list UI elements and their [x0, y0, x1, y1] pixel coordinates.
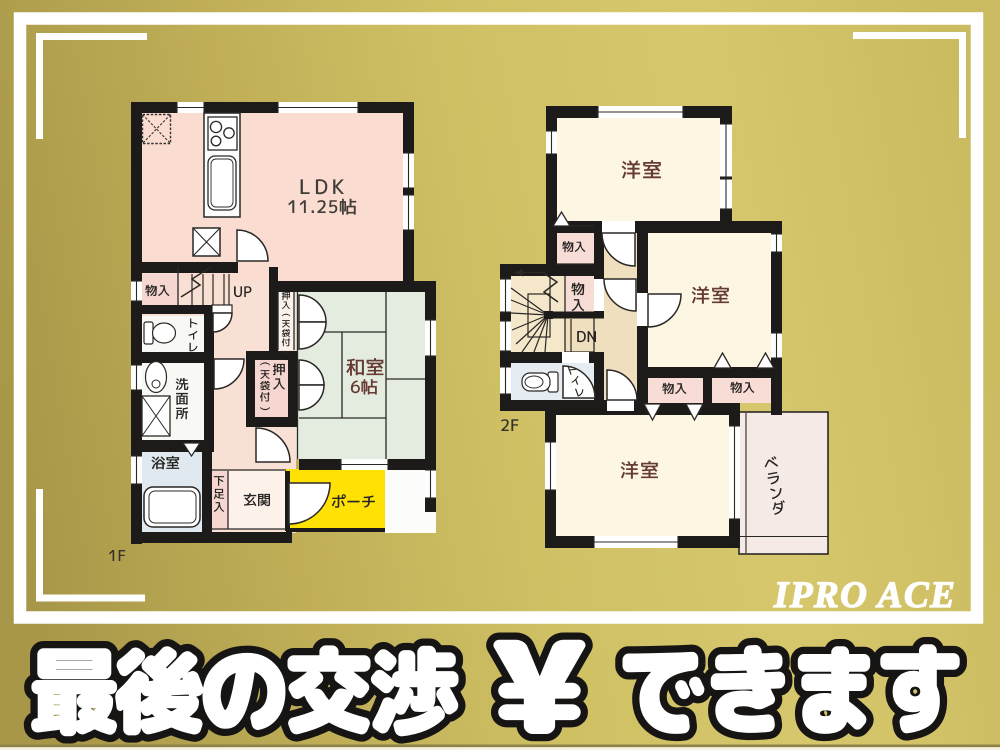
svg-text:IPRO ACE: IPRO ACE — [773, 575, 956, 616]
